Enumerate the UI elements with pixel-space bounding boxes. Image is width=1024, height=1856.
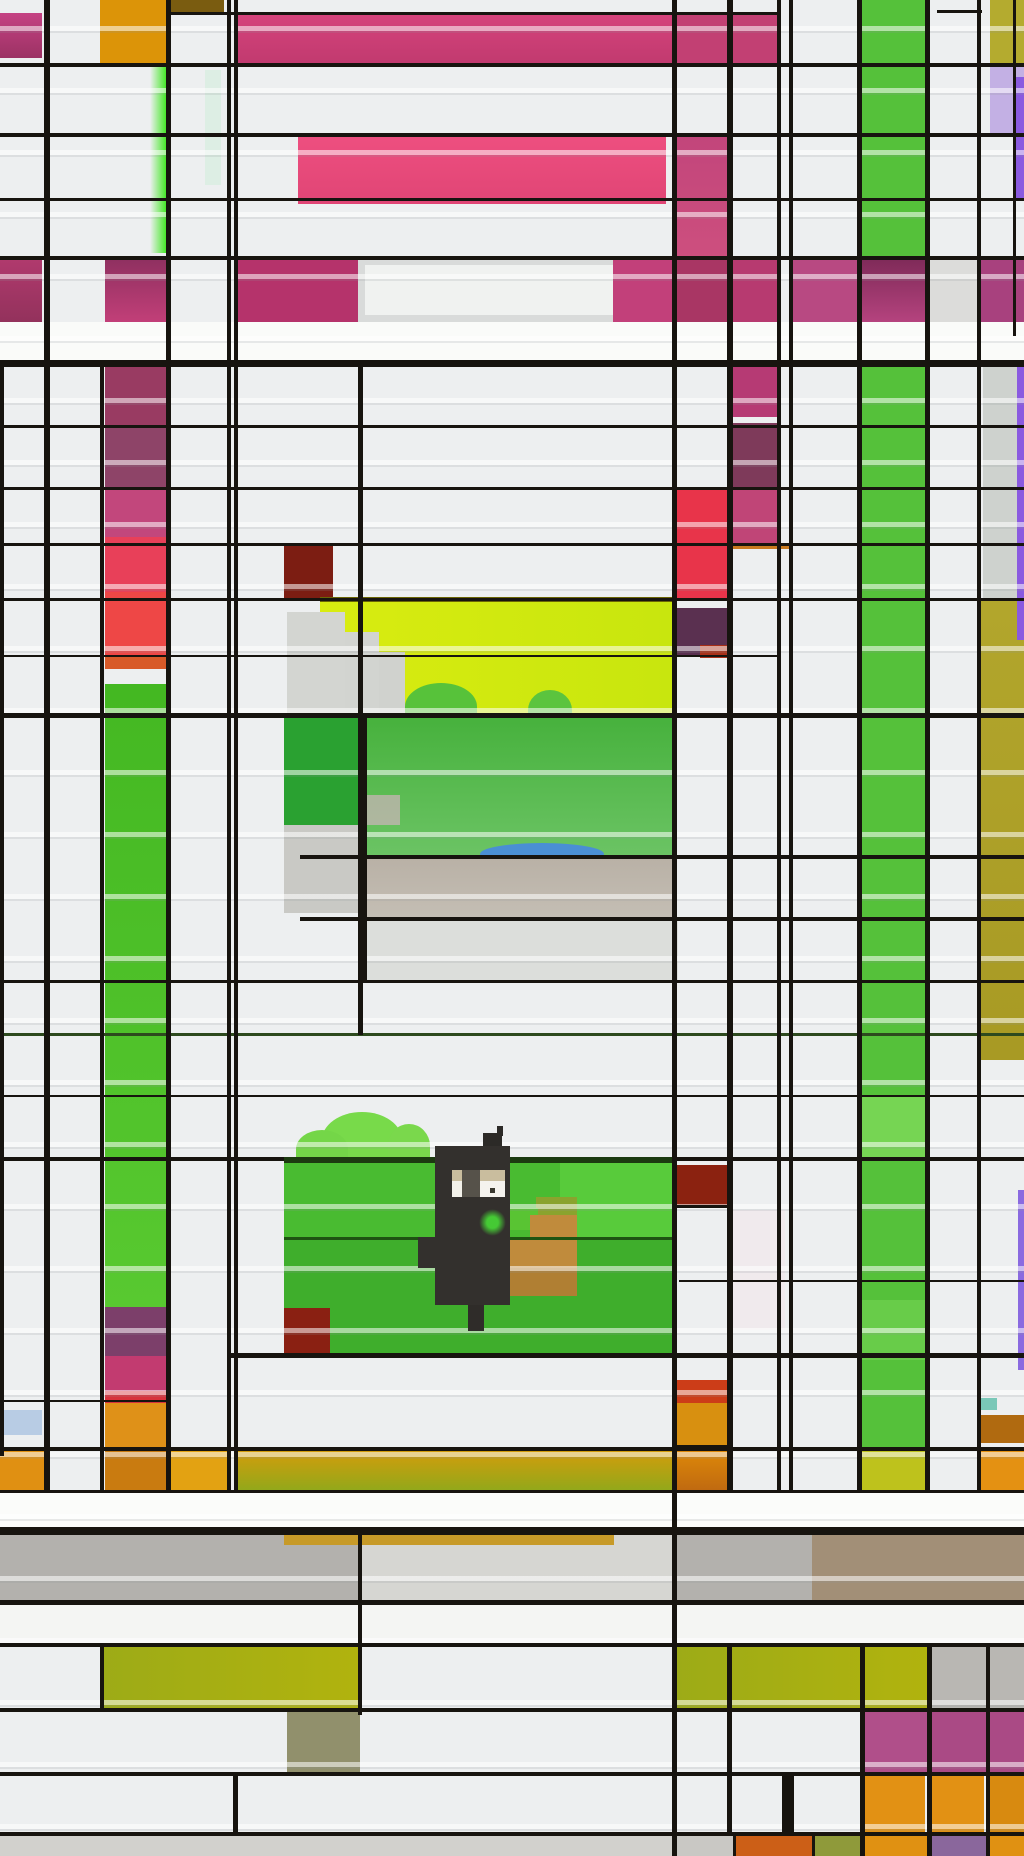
grid-hline <box>168 12 778 15</box>
grid-hline <box>0 198 1024 201</box>
mint-column <box>205 70 221 185</box>
gray-block-left <box>284 825 362 913</box>
leftcol-orangered <box>105 655 166 669</box>
grid-vline <box>363 715 367 982</box>
orange-chip-right <box>675 1403 727 1445</box>
grid-hline <box>0 1490 1024 1493</box>
grid-hline <box>0 256 1024 260</box>
orange-low-3 <box>990 1776 1024 1832</box>
brick-block-left-low <box>284 1308 330 1353</box>
green-column-light-patch-1 <box>857 1095 925 1157</box>
grid-vline <box>234 0 238 1490</box>
grid-hline <box>300 855 1024 859</box>
character-shoulder <box>418 1237 435 1268</box>
leftcol-purple-low <box>105 1307 166 1356</box>
magenta-low-2 <box>930 1712 1024 1772</box>
grid-hline <box>230 1353 1024 1358</box>
pink-bar-1-right <box>672 14 778 64</box>
band-magenta-1 <box>0 258 42 322</box>
bottom-gray <box>0 1836 672 1856</box>
grid-vline <box>789 0 793 1490</box>
mustard-sliver <box>284 1534 614 1545</box>
band-magenta-9 <box>977 258 1024 322</box>
grid-hline <box>0 655 780 657</box>
character-face-visor <box>462 1170 480 1197</box>
grid-hline <box>0 980 1024 983</box>
bottom-redorange <box>735 1836 812 1856</box>
orange-block-topleft <box>100 0 167 66</box>
graygreen-column <box>983 363 1017 600</box>
grid-vline <box>860 1643 865 1856</box>
grid-vline <box>100 363 104 1490</box>
leftcol-magenta-low <box>105 1356 166 1391</box>
pink-smudge <box>362 795 400 825</box>
grid-vline <box>927 1643 932 1856</box>
magenta-chip-topleft <box>0 13 42 58</box>
bottom-orange-1 <box>865 1836 927 1856</box>
grid-vline <box>812 1836 815 1856</box>
band-light <box>925 258 977 322</box>
grid-vline <box>0 363 4 1456</box>
grid-hline <box>672 1205 733 1208</box>
leftcol-red <box>105 592 166 655</box>
grid-hline <box>300 917 1024 921</box>
grid-hline <box>0 1708 1024 1712</box>
amber-5-olive <box>860 1447 925 1490</box>
grid-hline <box>937 10 982 13</box>
grid-vline <box>100 1643 104 1712</box>
band-magenta-4 <box>613 258 672 322</box>
midcol-pink <box>732 487 777 543</box>
amber-4 <box>672 1447 727 1490</box>
grid-vline <box>986 1643 990 1856</box>
grid-vline <box>777 0 781 1490</box>
grid-hline <box>0 1095 1024 1097</box>
olive-column-right <box>977 600 1024 1060</box>
grid-hline <box>0 1033 1024 1036</box>
leftcol-plum <box>105 363 166 425</box>
brick-block-upper <box>284 543 333 600</box>
grid-hline <box>0 133 1024 137</box>
band-white-inner <box>365 265 613 315</box>
green-column-left <box>105 684 166 1307</box>
grid-hline <box>0 1400 168 1402</box>
grid-hline <box>0 1447 1024 1451</box>
grid-vline <box>233 1772 238 1835</box>
bottom-orange-2 <box>990 1836 1024 1856</box>
green-glow-sliver <box>150 67 167 253</box>
leftcol-orange-low <box>105 1403 166 1447</box>
pale-blue-chip-left <box>0 1410 42 1435</box>
dirt-base <box>508 1268 577 1296</box>
magenta-column-mid-top <box>672 134 727 258</box>
bottom-purple <box>930 1836 986 1856</box>
grid-vline <box>977 0 981 1490</box>
grid-vline <box>857 0 862 1490</box>
violet-sliver-top <box>1016 77 1024 200</box>
grid-hline <box>0 713 1024 718</box>
band-magenta-3 <box>237 258 358 322</box>
grayband-brown <box>812 1534 1024 1600</box>
white-gap-upper <box>0 322 1024 360</box>
darkgreen-block <box>284 715 362 825</box>
grid-hline <box>0 598 1024 601</box>
grid-vline <box>733 1836 736 1856</box>
grid-hline <box>0 1157 284 1161</box>
orange-low-2 <box>930 1776 984 1832</box>
pink-bar-1 <box>237 12 672 64</box>
amber-center <box>237 1447 672 1490</box>
grid-hline <box>0 425 1024 428</box>
olive-block-topright <box>990 0 1024 64</box>
green-room-block <box>362 715 673 859</box>
green-column-right <box>857 363 925 1447</box>
band-magenta-5 <box>672 258 727 322</box>
olive-band-right <box>677 1647 930 1708</box>
bottom-gray-2 <box>672 1836 733 1856</box>
band-magenta-7 <box>789 258 857 322</box>
grid-vline <box>727 0 733 1490</box>
olive-band-left <box>102 1647 360 1708</box>
white-gap-lower <box>0 1490 1024 1527</box>
grid-hline <box>0 1832 1024 1836</box>
character-green-glow <box>479 1209 506 1236</box>
character-leg <box>468 1305 484 1331</box>
orange-low-1 <box>865 1776 925 1832</box>
midcol-magenta <box>732 365 777 417</box>
amber-6 <box>977 1447 1024 1490</box>
terrain-upper-right <box>560 1163 675 1237</box>
white-band-low <box>0 1605 1024 1643</box>
amber-3 <box>168 1447 227 1490</box>
leftcol-pink <box>105 487 166 537</box>
amber-2 <box>105 1447 166 1490</box>
grid-hline <box>0 1643 1024 1647</box>
band-magenta-6 <box>727 258 778 322</box>
grid-vline <box>358 1534 362 1715</box>
leftcol-purple <box>105 425 166 487</box>
green-column-right-top <box>857 0 925 258</box>
grid-vline <box>782 1776 794 1832</box>
grid-hline <box>0 487 1024 490</box>
character-antenna <box>497 1126 503 1136</box>
bottom-olive <box>812 1836 860 1856</box>
brown-orange-chip-right <box>980 1415 1024 1443</box>
taupe-block <box>362 859 673 917</box>
grid-hline <box>0 360 1024 367</box>
game-screen[interactable] <box>0 0 1024 1856</box>
light-block-center <box>358 921 678 980</box>
grid-vline <box>925 0 930 1490</box>
pink-bar-2 <box>298 134 666 204</box>
brown-strip-top <box>168 0 224 12</box>
redorange-chip-right <box>675 1380 727 1403</box>
grid-hline <box>0 63 1024 67</box>
grid-vline <box>1013 0 1016 336</box>
grid-vline <box>672 0 677 1856</box>
amber-1 <box>0 1447 44 1490</box>
olivegray-chip <box>287 1712 360 1772</box>
band-magenta-8 <box>857 258 925 322</box>
grid-vline <box>166 0 171 1490</box>
magenta-low-1 <box>865 1712 927 1772</box>
character-face-dot <box>490 1188 495 1193</box>
grid-hline <box>0 1600 1024 1605</box>
green-column-light-patch-2 <box>857 1300 925 1360</box>
grid-hline <box>672 1157 1024 1161</box>
grid-hline <box>0 1772 1024 1776</box>
character-face-white-left <box>452 1181 462 1197</box>
grayband-right <box>672 1534 812 1600</box>
grid-vline <box>44 0 50 1490</box>
band-magenta-2 <box>105 258 168 322</box>
grid-hline <box>0 1527 1024 1535</box>
gray-chip-band <box>930 1647 1024 1708</box>
grid-hline <box>0 543 1024 546</box>
midcol-maroon <box>732 423 777 487</box>
grid-vline <box>727 1643 732 1832</box>
grid-vline <box>227 0 231 1490</box>
darkred-right-block <box>675 1165 727 1205</box>
